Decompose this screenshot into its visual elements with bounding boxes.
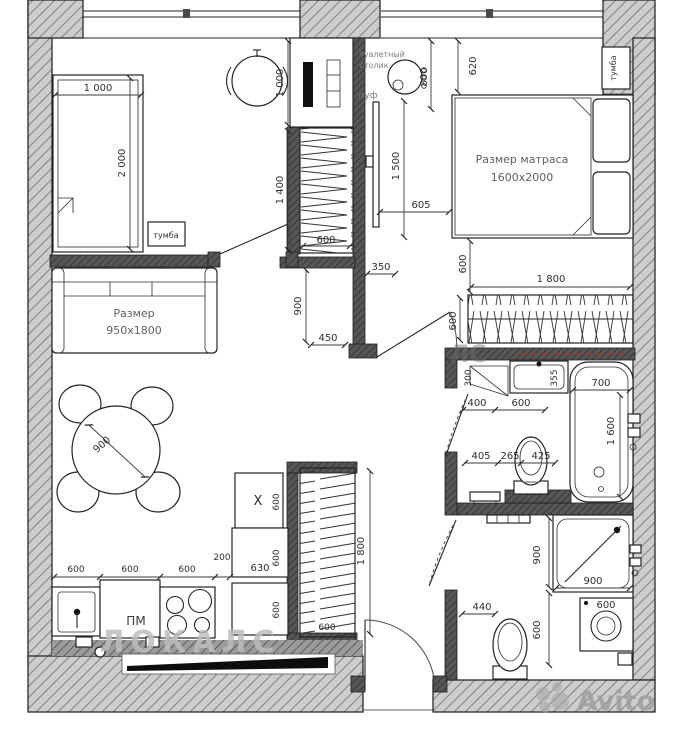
dim-630: 630 — [250, 563, 269, 574]
shower-fitting-2 — [630, 558, 641, 566]
bath-fitting-1 — [628, 414, 640, 423]
dressing-table-knob — [366, 156, 373, 167]
dim-450: 450 — [318, 333, 337, 344]
dim-400: 400 — [467, 398, 486, 409]
armrest-left — [227, 67, 232, 95]
dressing-table — [366, 102, 379, 227]
mattress-label-1: Размер матраса — [476, 153, 569, 166]
dim-bed-width: 1 000 — [84, 83, 113, 94]
dim-bed-length: 2 000 — [117, 149, 128, 178]
wall-bath-left-2 — [445, 452, 457, 515]
dim-kitchen-4: 200 — [213, 553, 230, 563]
double-bed — [452, 95, 633, 238]
wall-pier-topleft — [28, 0, 83, 38]
door-shower-room — [429, 520, 456, 586]
door-bathroom — [445, 394, 468, 458]
single-bed — [53, 75, 143, 252]
dim-kitchen-2: 600 — [121, 565, 138, 575]
dim-405: 405 — [471, 451, 490, 462]
hall-wardrobe — [468, 295, 633, 343]
bath-fitting-2 — [628, 428, 640, 437]
dim-fridge-depth: 600 — [272, 493, 282, 510]
dim-wardrobe-bottom-h: 1 800 — [356, 537, 367, 566]
wall-bath-left-3 — [445, 590, 457, 680]
dim-605: 605 — [411, 200, 430, 211]
pouf-label: пуф — [359, 91, 378, 101]
wm-fixture — [618, 653, 632, 665]
window-left — [83, 9, 300, 18]
dressing-table-label-1: туалетный — [359, 50, 405, 59]
dim-bath-width: 700 — [591, 378, 610, 389]
watermark-partial: ЛС — [449, 340, 487, 368]
wardrobe-bottom — [300, 468, 355, 637]
dim-440: 440 — [472, 602, 491, 613]
watermark-site: ЛОКАЛС — [99, 625, 280, 660]
dressing-table-label-2: столик — [359, 61, 388, 70]
entrance-post-left — [351, 676, 365, 692]
nightstand-living-label: тумба — [153, 231, 178, 240]
floor-plan-image: 1 000 2 000 тумба 1 000 1 400 600 350 90… — [0, 0, 678, 733]
towel-rail — [487, 515, 530, 523]
pillow-1 — [593, 99, 630, 162]
dim-600-bath: 600 — [511, 398, 530, 409]
cabinet-foot-1 — [76, 637, 92, 647]
dim-shower-w: 900 — [583, 576, 602, 587]
dim-350: 350 — [371, 262, 390, 273]
window-right — [381, 9, 603, 18]
shower-room — [487, 515, 641, 679]
dim-wardrobe-top-h: 1 400 — [275, 176, 286, 205]
bath-cabinet-open — [470, 366, 508, 396]
wall-wardrobe-side — [287, 127, 300, 254]
dim-425: 425 — [531, 451, 550, 462]
dim-midbox-depth: 600 — [272, 549, 282, 566]
dim-900-passage: 900 — [293, 296, 304, 315]
door-post-living-a — [208, 252, 220, 267]
pillow-2 — [593, 172, 630, 234]
wall-central-foot — [349, 344, 377, 358]
wall-central — [353, 38, 365, 346]
wall-living-divider-left — [50, 255, 218, 267]
dim-300: 300 — [464, 369, 474, 386]
shower-head — [614, 527, 620, 533]
dim-kitchen-3: 600 — [178, 565, 195, 575]
dim-washer: 600 — [596, 600, 615, 611]
shower-fitting-1 — [630, 545, 641, 553]
dim-wardrobe-top-w: 600 — [316, 235, 335, 246]
dim-265: 265 — [500, 451, 519, 462]
desk — [290, 38, 353, 127]
dim-600-shower: 600 — [532, 620, 543, 639]
dim-hall-wardrobe-d: 600 — [448, 311, 459, 330]
nightstand-bedroom-label: тумба — [609, 55, 618, 80]
dim-lowbox-depth: 600 — [272, 601, 282, 618]
watermark-brand: Avito — [577, 686, 655, 717]
wall-bottom-wardrobe-side — [287, 473, 298, 640]
dim-hall-gap: 600 — [458, 254, 469, 273]
wall-right — [633, 38, 655, 680]
dining-table — [57, 385, 180, 512]
dim-hall-wardrobe-w: 1 800 — [537, 274, 566, 285]
dim-sink-355: 355 — [550, 369, 560, 386]
fridge-mark: Х — [254, 494, 263, 509]
door-entrance — [365, 620, 435, 690]
monitor — [303, 62, 313, 107]
dim-bath-length: 1 600 — [606, 417, 617, 446]
dim-desk: 1 000 — [275, 69, 286, 98]
wall-left — [28, 0, 52, 662]
sofa-label-1: Размер — [113, 307, 154, 320]
dim-shower-h: 900 — [532, 545, 543, 564]
door-post-living-b — [286, 252, 298, 267]
dim-kitchen-1: 600 — [67, 565, 84, 575]
door-living — [220, 224, 291, 254]
sofa-label-2: 950x1800 — [106, 324, 162, 337]
toilet-2 — [493, 619, 527, 679]
dim-800: 800 — [419, 67, 430, 86]
wall-pier-topmid — [300, 0, 380, 38]
dim-wardrobe-bottom-w: 600 — [318, 623, 335, 633]
dim-620: 620 — [468, 56, 479, 75]
dim-1500: 1 500 — [391, 152, 402, 181]
wall-bath-divider — [457, 503, 633, 515]
floor-plan-svg: 1 000 2 000 тумба 1 000 1 400 600 350 90… — [0, 0, 678, 733]
mattress-label-2: 1600x2000 — [491, 171, 554, 184]
